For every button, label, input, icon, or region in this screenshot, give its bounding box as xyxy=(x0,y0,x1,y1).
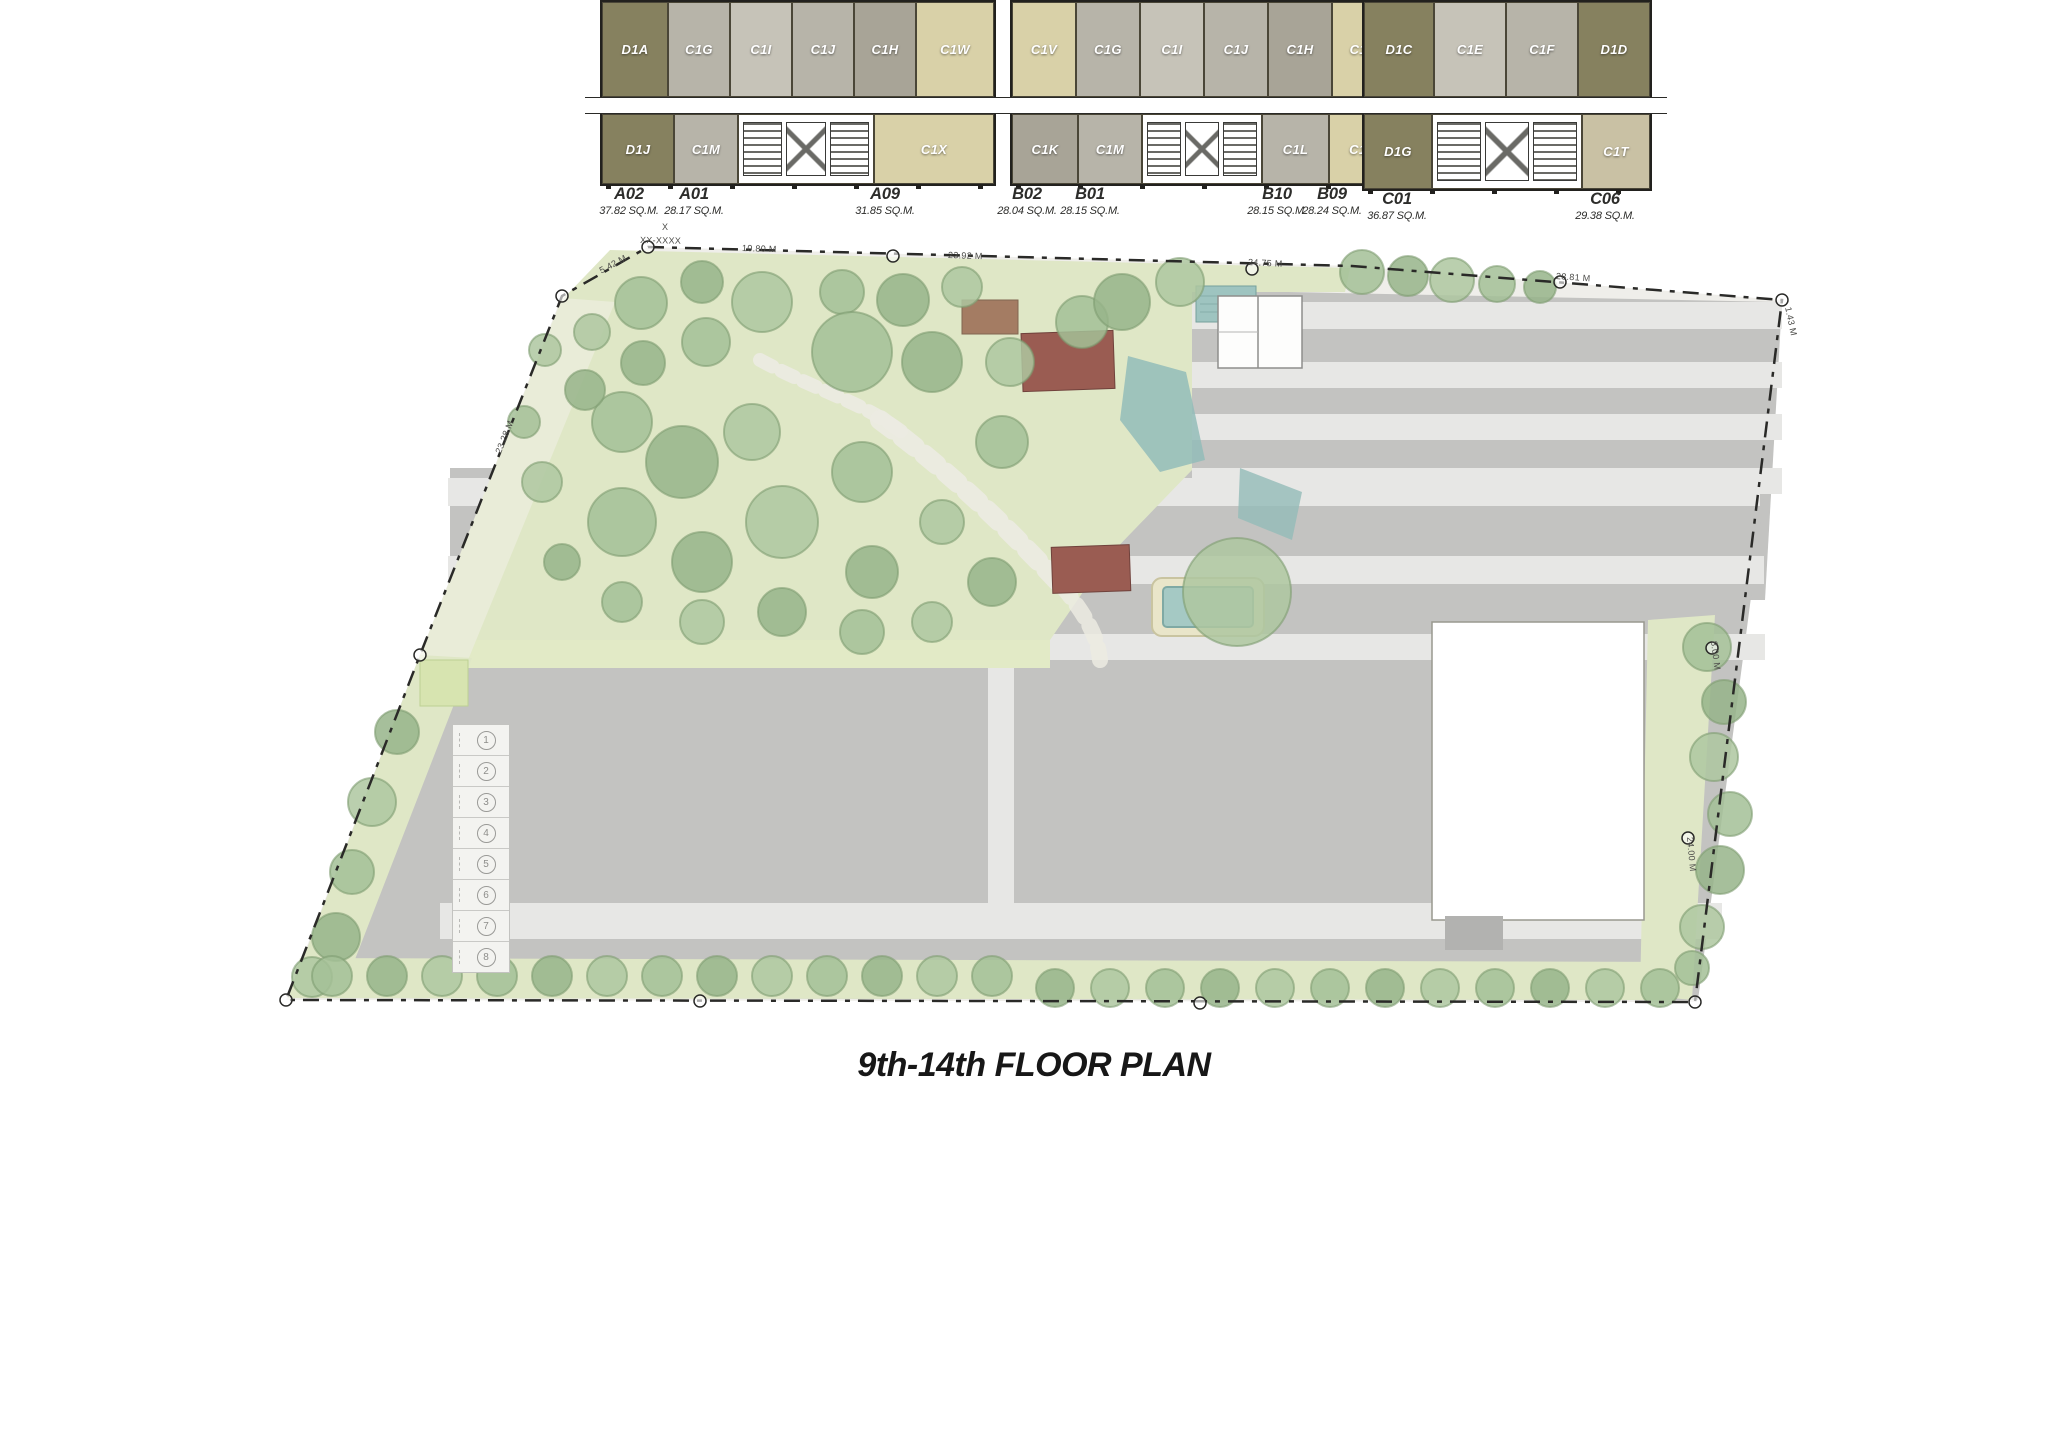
unit-cell: C1M xyxy=(1078,114,1142,184)
tree xyxy=(807,956,847,996)
unit-area: 28.04 SQ.M. xyxy=(997,205,1057,217)
dimension-label: 10.80 M xyxy=(742,243,777,254)
unit-cell: C1M xyxy=(674,114,738,184)
tree xyxy=(812,312,892,392)
unit-label-b01: B0128.15 SQ.M. xyxy=(1060,186,1120,217)
unit-row-bottom: D1GC1T xyxy=(1364,114,1650,189)
tree xyxy=(1094,274,1150,330)
stair-icon xyxy=(1223,122,1257,176)
unit-row-bottom: C1KC1MC1LC1O xyxy=(1012,114,1397,184)
parking-stall: 7 xyxy=(453,911,509,942)
stair-icon xyxy=(1147,122,1181,176)
dimension-label: XX-XXXX xyxy=(640,235,681,246)
tree xyxy=(732,272,792,332)
building-c-block: D1CC1EC1FD1DD1GC1T xyxy=(1362,0,1652,191)
unit-area: 37.82 SQ.M. xyxy=(599,205,659,217)
unit-id: A02 xyxy=(599,186,659,203)
page-title: 9th-14th FLOOR PLAN xyxy=(857,1046,1210,1085)
tree xyxy=(1388,256,1428,296)
unit-label-a02: A0237.82 SQ.M. xyxy=(599,186,659,217)
unit-cell: C1I xyxy=(1140,2,1204,97)
tree xyxy=(846,546,898,598)
unit-area: 28.15 SQ.M. xyxy=(1060,205,1120,217)
boundary-vertex xyxy=(1194,997,1206,1009)
unit-area: 28.15 SQ.M. xyxy=(1247,205,1307,217)
unit-cell: C1X xyxy=(874,114,994,184)
tree xyxy=(1675,951,1709,985)
tree xyxy=(862,956,902,996)
unit-area: 31.85 SQ.M. xyxy=(855,205,915,217)
unit-cell: C1E xyxy=(1434,2,1506,97)
unit-area: 28.17 SQ.M. xyxy=(664,205,724,217)
tree xyxy=(917,956,957,996)
tree xyxy=(1183,538,1291,646)
unit-type-label: C1I xyxy=(1161,42,1182,57)
tree xyxy=(532,956,572,996)
parking-stall: 2 xyxy=(453,756,509,787)
unit-type-label: D1A xyxy=(622,42,649,57)
parking-stall: 3 xyxy=(453,787,509,818)
parking-stall-number: 3 xyxy=(477,793,496,812)
unit-cell: D1G xyxy=(1364,114,1432,189)
unit-id: C01 xyxy=(1367,191,1427,208)
stair-icon xyxy=(1533,122,1577,181)
tree xyxy=(615,277,667,329)
tree xyxy=(522,462,562,502)
unit-type-label: C1M xyxy=(692,142,720,157)
dimension-label: 24.75 M xyxy=(1248,257,1283,269)
tree xyxy=(574,314,610,350)
tree xyxy=(1430,258,1474,302)
unit-label-c06: C0629.38 SQ.M. xyxy=(1575,191,1635,222)
unit-type-label: D1J xyxy=(626,142,651,157)
parking-stall: 1 xyxy=(453,725,509,756)
building-a-block: D1AC1GC1IC1JC1HC1WD1JC1MC1X xyxy=(600,0,996,186)
tree xyxy=(621,341,665,385)
tree xyxy=(697,956,737,996)
unit-cell: C1J xyxy=(1204,2,1268,97)
unit-cell: C1K xyxy=(1012,114,1078,184)
unit-cell: C1F xyxy=(1506,2,1578,97)
tree xyxy=(1696,846,1744,894)
unit-cell: C1G xyxy=(1076,2,1140,97)
tree xyxy=(565,370,605,410)
stair-icon xyxy=(1437,122,1481,181)
unit-id: C06 xyxy=(1575,191,1635,208)
utility-rooms xyxy=(1218,296,1302,368)
tree xyxy=(724,404,780,460)
unit-type-label: C1L xyxy=(1283,142,1308,157)
unit-type-label: C1E xyxy=(1457,42,1483,57)
unit-type-label: C1W xyxy=(940,42,970,57)
stair-lift-core xyxy=(1142,114,1262,184)
boundary-vertex xyxy=(280,994,292,1006)
tree xyxy=(312,913,360,961)
dimension-label: X xyxy=(662,222,668,232)
unit-type-label: D1C xyxy=(1386,42,1413,57)
corridor xyxy=(1347,97,1667,114)
parking-stall: 8 xyxy=(453,942,509,972)
tree xyxy=(752,956,792,996)
tree xyxy=(1690,733,1738,781)
lift-icon xyxy=(786,122,825,176)
unit-row-bottom: D1JC1MC1X xyxy=(602,114,994,184)
lift-icon xyxy=(1485,122,1529,181)
parking-stall-number: 4 xyxy=(477,824,496,843)
unit-type-label: C1X xyxy=(921,142,947,157)
stair-lift-core xyxy=(738,114,874,184)
unit-type-label: C1H xyxy=(872,42,899,57)
unit-cell: C1L xyxy=(1262,114,1329,184)
tree xyxy=(912,602,952,642)
unit-cell: C1H xyxy=(854,2,916,97)
unit-id: A01 xyxy=(664,186,724,203)
unit-type-label: C1I xyxy=(750,42,771,57)
tree xyxy=(588,488,656,556)
tree xyxy=(642,956,682,996)
unit-row-top: C1VC1GC1IC1JC1HC1W xyxy=(1012,2,1397,97)
building-b: C1VC1GC1IC1JC1HC1WC1KC1MC1LC1OB0330.03 S… xyxy=(1010,0,1395,186)
tree xyxy=(820,270,864,314)
unit-id: B09 xyxy=(1302,186,1362,203)
building-b-block: C1VC1GC1IC1JC1HC1WC1KC1MC1LC1O xyxy=(1010,0,1399,186)
unit-type-label: C1T xyxy=(1603,144,1628,159)
tree xyxy=(1524,271,1556,303)
stair-lift-core xyxy=(1432,114,1582,189)
tree xyxy=(976,416,1028,468)
unit-cell: C1V xyxy=(1012,2,1076,97)
unit-area: 29.38 SQ.M. xyxy=(1575,210,1635,222)
unit-row-top: D1AC1GC1IC1JC1HC1W xyxy=(602,2,994,97)
tree xyxy=(972,956,1012,996)
unit-type-label: C1M xyxy=(1096,142,1124,157)
unit-type-label: D1G xyxy=(1384,144,1412,159)
unit-type-label: C1K xyxy=(1032,142,1059,157)
parking-stall-number: 6 xyxy=(477,886,496,905)
building-c: D1CC1EC1FD1DD1GC1TC0235.92 SQ.M.C0327.40… xyxy=(1362,0,1648,191)
unit-area: 28.24 SQ.M. xyxy=(1302,205,1362,217)
tree xyxy=(672,532,732,592)
tree xyxy=(746,486,818,558)
tree xyxy=(646,426,718,498)
tree xyxy=(367,956,407,996)
tree xyxy=(968,558,1016,606)
unit-type-label: C1J xyxy=(811,42,836,57)
boundary-vertex xyxy=(1689,996,1701,1008)
unit-cell: D1D xyxy=(1578,2,1650,97)
tree xyxy=(682,318,730,366)
unit-id: A09 xyxy=(855,186,915,203)
tree xyxy=(1340,250,1384,294)
unit-area: 36.87 SQ.M. xyxy=(1367,210,1427,222)
unit-type-label: C1F xyxy=(1529,42,1554,57)
unit-type-label: D1D xyxy=(1601,42,1628,57)
corridor xyxy=(585,97,1011,114)
unit-label-a09: A0931.85 SQ.M. xyxy=(855,186,915,217)
tree xyxy=(312,956,352,996)
tree xyxy=(902,332,962,392)
tree xyxy=(544,544,580,580)
lift-icon xyxy=(1185,122,1219,176)
boundary-vertex xyxy=(887,250,899,262)
parking-stall-number: 2 xyxy=(477,762,496,781)
tree xyxy=(1479,266,1515,302)
unit-cell: C1J xyxy=(792,2,854,97)
unit-row-top: D1CC1EC1FD1D xyxy=(1364,2,1650,97)
parking-stall: 6 xyxy=(453,880,509,911)
unit-type-label: C1G xyxy=(1094,42,1122,57)
parking-stalls: 12345678 xyxy=(452,724,510,973)
boundary-vertex xyxy=(694,995,706,1007)
tree xyxy=(330,850,374,894)
tree xyxy=(920,500,964,544)
unit-cell: D1C xyxy=(1364,2,1434,97)
tree xyxy=(840,610,884,654)
unit-label-a01: A0128.17 SQ.M. xyxy=(664,186,724,217)
dimension-label: 23.92 M xyxy=(948,250,983,261)
floor-plan-canvas: D1AC1GC1IC1JC1HC1WD1JC1MC1XA0335.27 SQ.M… xyxy=(0,0,2048,1448)
unit-type-label: C1J xyxy=(1224,42,1249,57)
parking-stall-number: 1 xyxy=(477,731,496,750)
unit-type-label: C1G xyxy=(685,42,713,57)
boundary-vertex xyxy=(556,290,568,302)
unit-id: B02 xyxy=(997,186,1057,203)
unit-cell: C1I xyxy=(730,2,792,97)
unit-cell: C1T xyxy=(1582,114,1650,189)
parking-stall-number: 5 xyxy=(477,855,496,874)
tree xyxy=(832,442,892,502)
unit-label-b02: B0228.04 SQ.M. xyxy=(997,186,1057,217)
tree xyxy=(1708,792,1752,836)
unit-label-b10: B1028.15 SQ.M. xyxy=(1247,186,1307,217)
tree xyxy=(681,261,723,303)
existing-building-footprint xyxy=(1432,622,1644,950)
unit-cell: D1A xyxy=(602,2,668,97)
boundary-vertex xyxy=(414,649,426,661)
tree xyxy=(986,338,1034,386)
tree xyxy=(602,582,642,622)
parking-stall-number: 8 xyxy=(477,948,496,967)
unit-label-b09: B0928.24 SQ.M. xyxy=(1302,186,1362,217)
unit-label-c01: C0136.87 SQ.M. xyxy=(1367,191,1427,222)
tree xyxy=(587,956,627,996)
tree xyxy=(1702,680,1746,724)
unit-cell: C1H xyxy=(1268,2,1332,97)
unit-cell: C1G xyxy=(668,2,730,97)
unit-type-label: C1V xyxy=(1031,42,1057,57)
stair-icon xyxy=(743,122,782,176)
unit-id: B10 xyxy=(1247,186,1307,203)
unit-id: B01 xyxy=(1060,186,1120,203)
tree xyxy=(758,588,806,636)
unit-cell: C1W xyxy=(916,2,994,97)
unit-type-label: C1H xyxy=(1287,42,1314,57)
stair-icon xyxy=(830,122,869,176)
building-a: D1AC1GC1IC1JC1HC1WD1JC1MC1XA0335.27 SQ.M… xyxy=(600,0,992,186)
tree xyxy=(680,600,724,644)
tree xyxy=(942,267,982,307)
parking-stall: 4 xyxy=(453,818,509,849)
tree xyxy=(1156,258,1204,306)
tree xyxy=(877,274,929,326)
unit-cell: D1J xyxy=(602,114,674,184)
boundary-vertex xyxy=(1776,294,1788,306)
parking-stall: 5 xyxy=(453,849,509,880)
parking-stall-number: 7 xyxy=(477,917,496,936)
